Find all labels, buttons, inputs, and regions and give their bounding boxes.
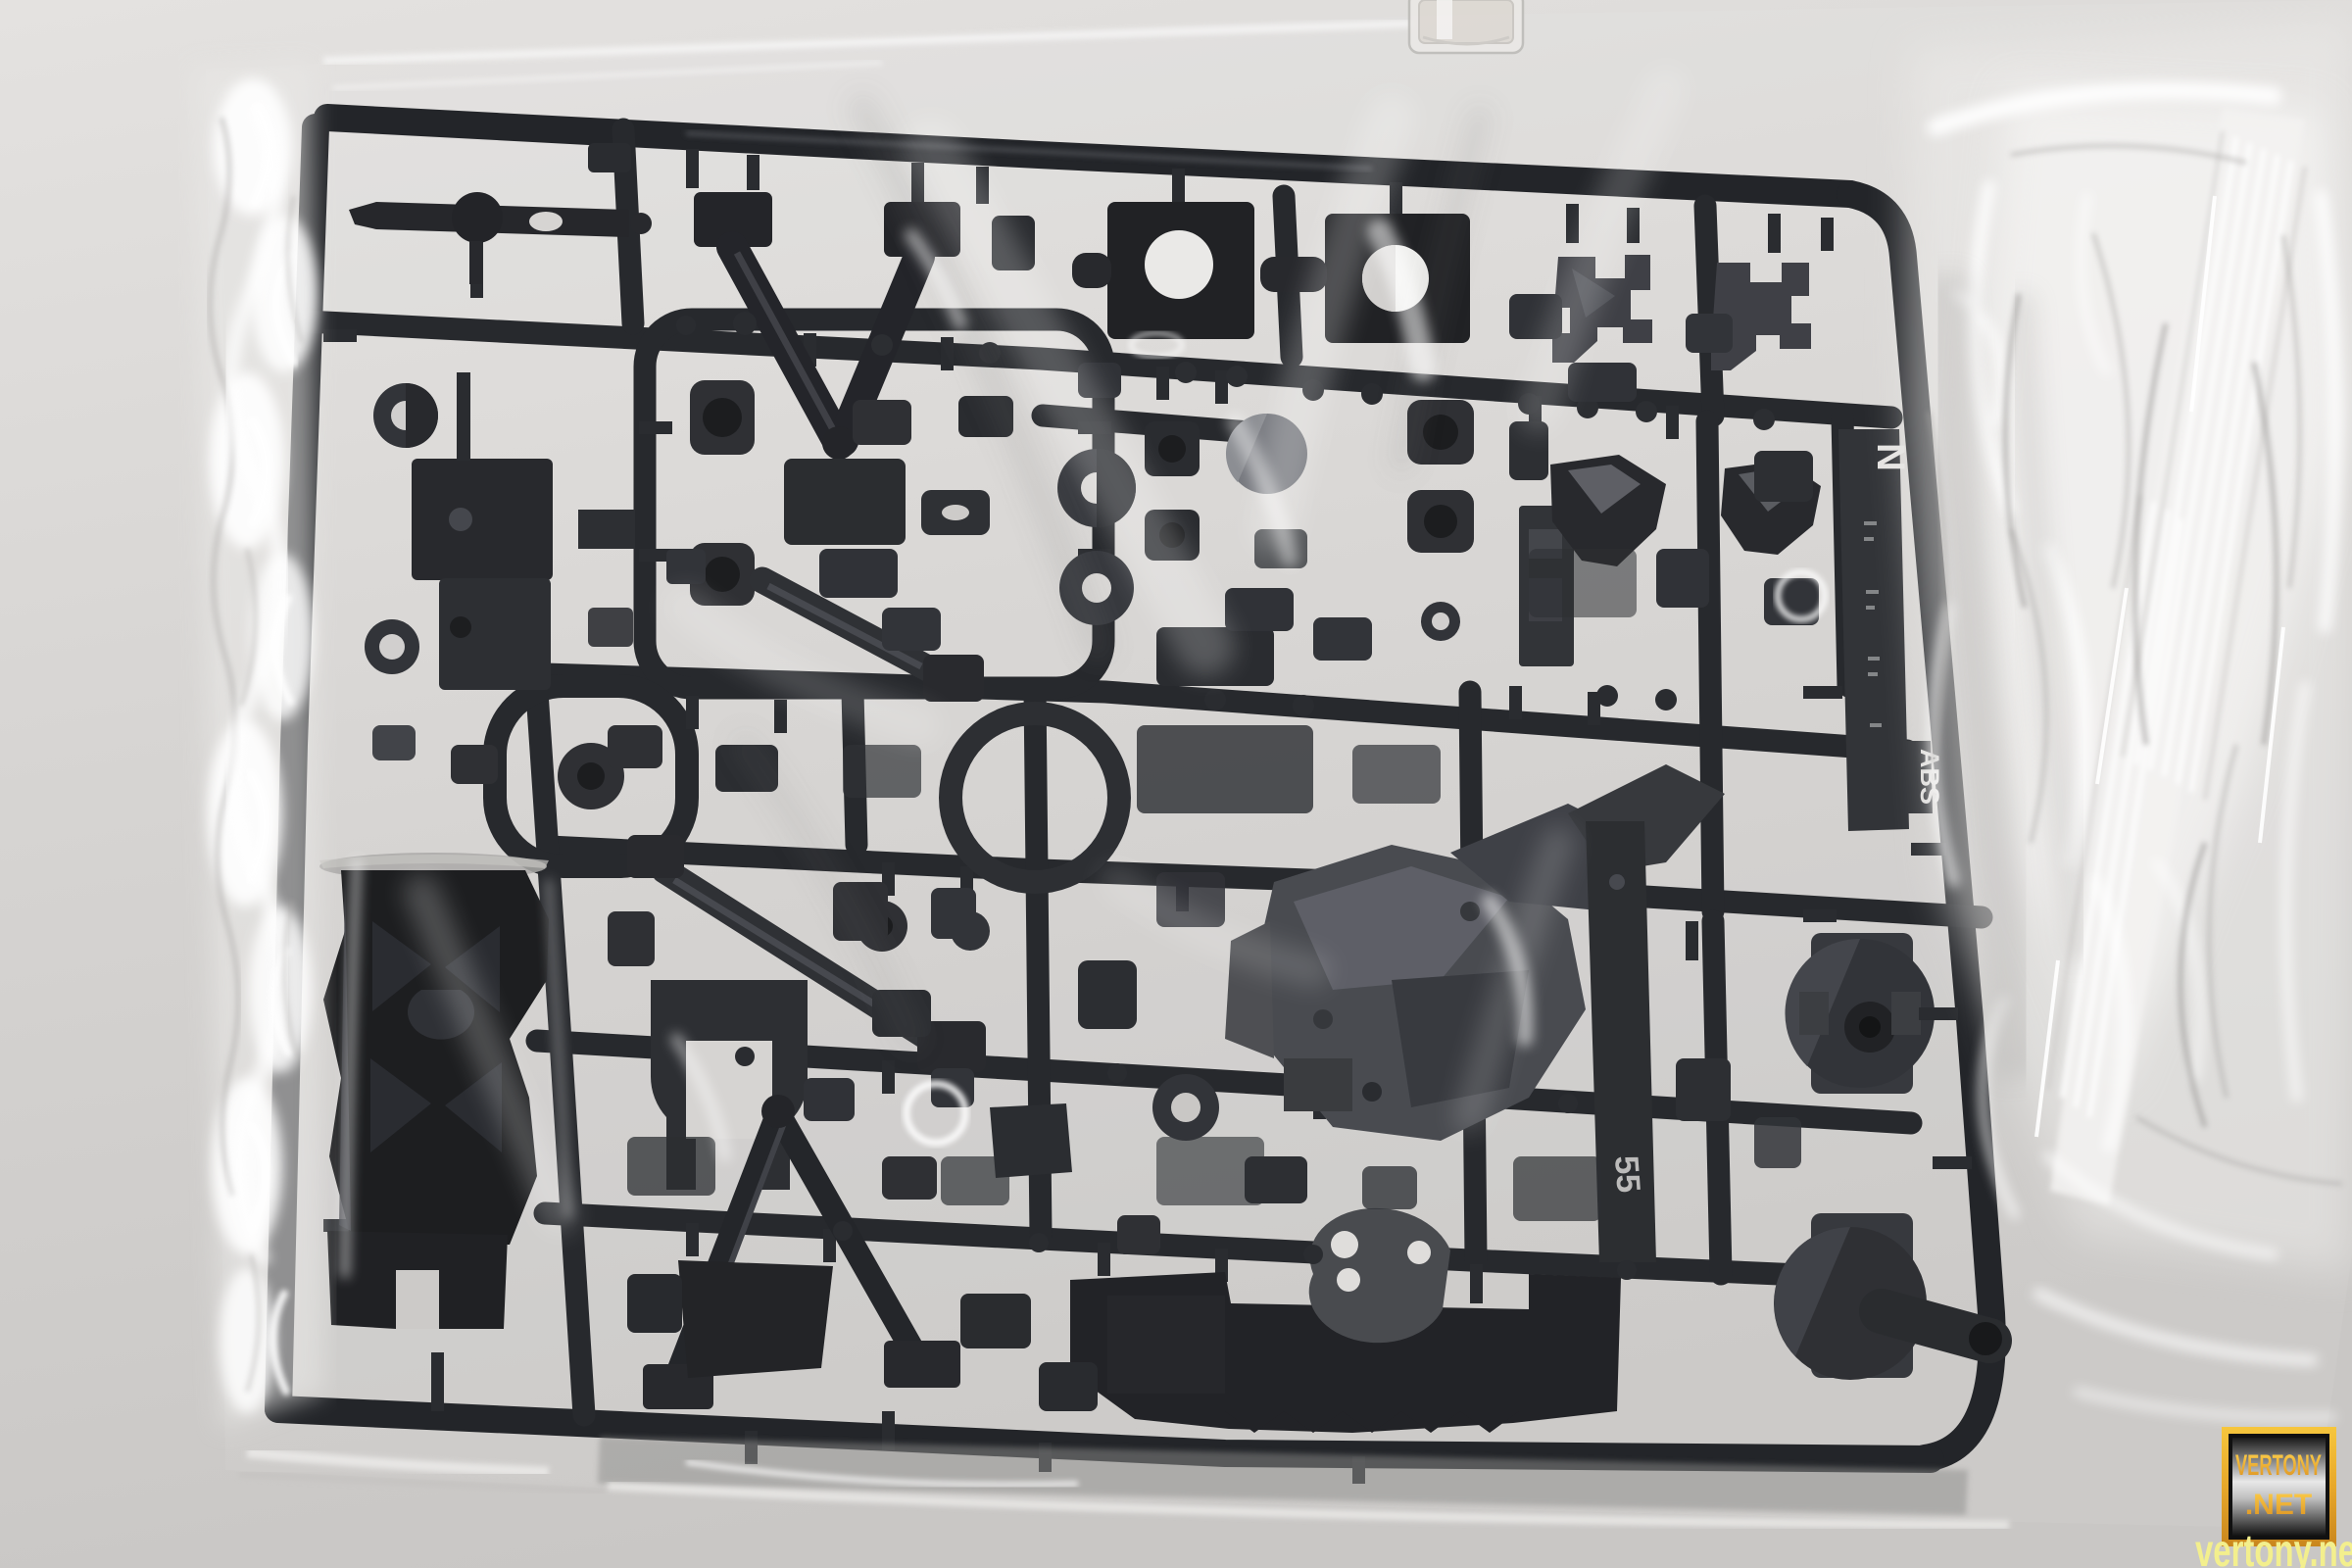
svg-text:.NET: .NET	[2245, 1489, 2312, 1521]
svg-text:vertony.net: vertony.net	[2195, 1525, 2352, 1568]
svg-text:VERTONY: VERTONY	[2235, 1449, 2322, 1482]
